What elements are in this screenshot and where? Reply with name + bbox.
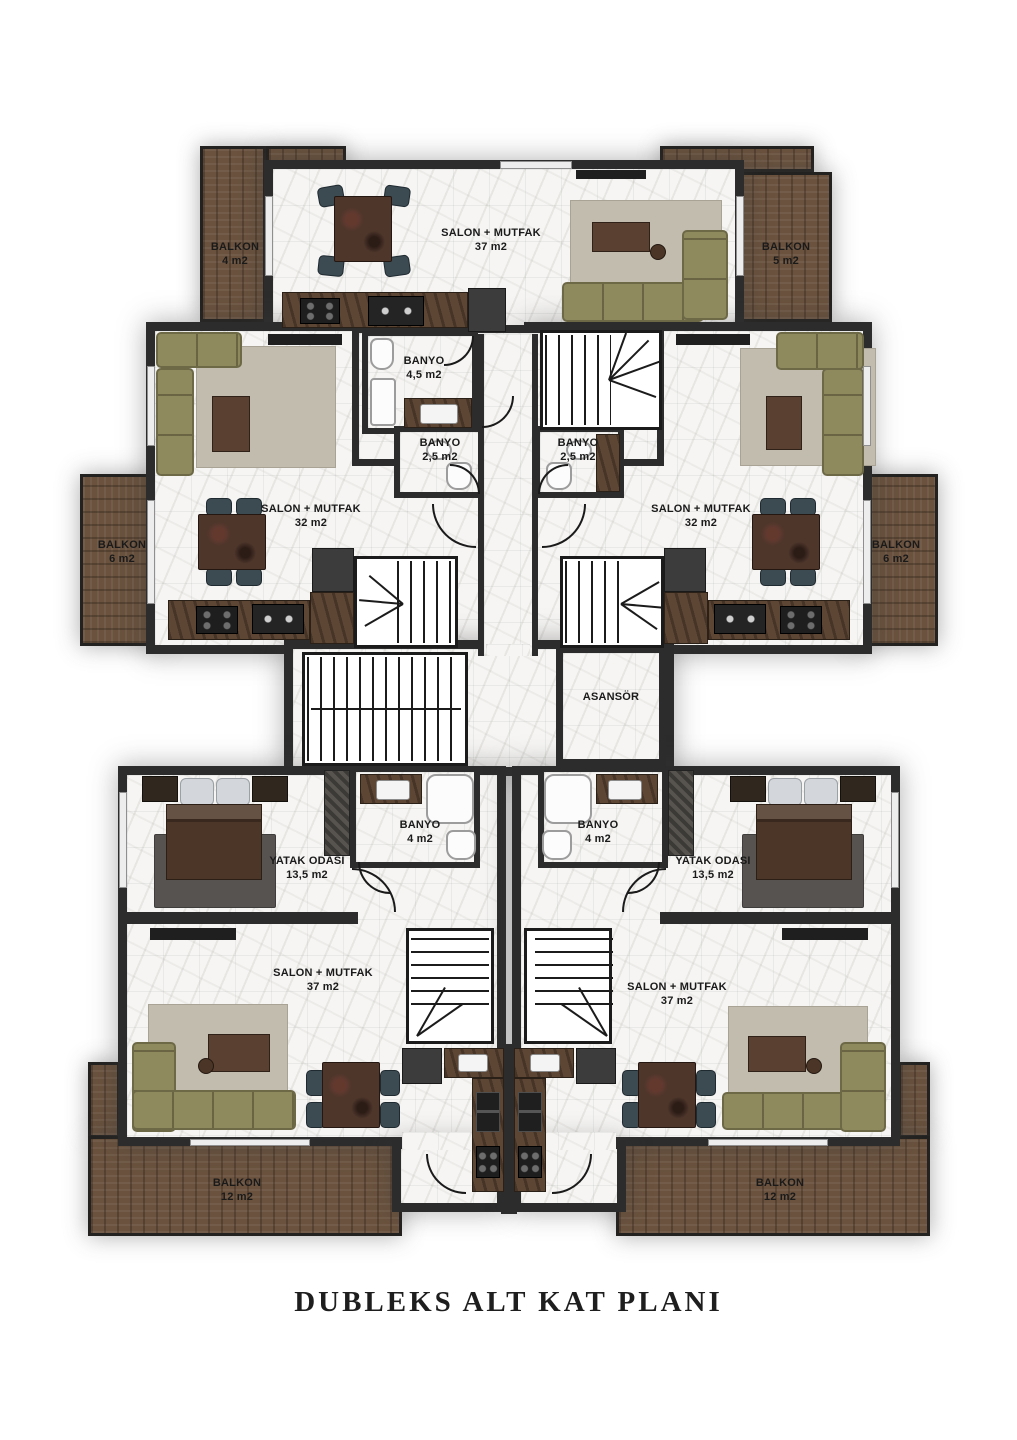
room-name: YATAK ODASI	[675, 854, 750, 868]
room-name: ASANSÖR	[583, 690, 639, 704]
dining-chair	[380, 1070, 400, 1096]
window	[708, 1139, 828, 1146]
room-label-salon-mid-left: SALON + MUTFAK 32 m2	[238, 502, 384, 530]
staircase-top-unit	[540, 330, 662, 430]
room-name: BALKON	[213, 1176, 261, 1190]
window	[736, 196, 744, 276]
room-area: 4 m2	[222, 254, 248, 268]
stair-treads	[545, 335, 611, 425]
staircase-core	[302, 652, 468, 766]
staircase-bottom-left-unit	[406, 928, 494, 1044]
stair-treads	[565, 561, 623, 643]
balcony-top-left-floor	[200, 146, 266, 322]
staircase-bottom-right-unit	[524, 928, 612, 1044]
partition-wall	[118, 912, 358, 924]
cooktop	[476, 1146, 500, 1178]
dining-table	[638, 1062, 696, 1128]
bed-pillow	[180, 778, 214, 806]
plan-title: DUBLEKS ALT KAT PLANI	[0, 1286, 1017, 1319]
coffee-table	[592, 222, 650, 252]
sofa	[156, 332, 242, 368]
room-name: SALON + MUTFAK	[441, 226, 541, 240]
window	[863, 366, 871, 446]
wardrobe	[324, 770, 350, 856]
nightstand	[730, 776, 766, 802]
partition-wall	[660, 912, 900, 924]
room-label-salon-top: SALON + MUTFAK 37 m2	[418, 226, 564, 254]
washbasin	[376, 780, 410, 800]
sofa	[156, 368, 194, 476]
window	[119, 792, 127, 888]
stair-treads	[397, 561, 455, 643]
dining-chair	[790, 568, 816, 586]
sofa	[682, 230, 728, 320]
floor-plan: BALKON 4 m2 SALON + MUTFAK 37 m2 BALKON …	[0, 0, 1017, 1440]
kitchen-sink	[530, 1054, 560, 1072]
wardrobe	[668, 770, 694, 856]
room-name: BALKON	[872, 538, 920, 552]
coffee-table	[212, 396, 250, 452]
room-area: 32 m2	[295, 516, 327, 530]
dining-chair	[206, 568, 232, 586]
room-label-salon-bottom-left: SALON + MUTFAK 37 m2	[250, 966, 396, 994]
window	[500, 161, 572, 169]
room-name: BALKON	[762, 240, 810, 254]
sofa	[840, 1042, 886, 1132]
side-table	[650, 244, 666, 260]
room-area: 4,5 m2	[406, 368, 441, 382]
stair-treads	[411, 933, 489, 1005]
kitchen-counter	[310, 592, 354, 644]
bed-pillow	[804, 778, 838, 806]
dining-chair	[696, 1102, 716, 1128]
washbasin	[420, 404, 458, 424]
room-label-banyo-bottom-left: BANYO 4 m2	[378, 818, 462, 846]
stair-winder-line	[621, 581, 660, 605]
room-label-banyo-bottom-right: BANYO 4 m2	[556, 818, 640, 846]
tv-unit	[268, 334, 342, 345]
window	[190, 1139, 310, 1146]
cooktop	[300, 298, 340, 324]
dishwasher	[576, 1048, 616, 1084]
room-area: 6 m2	[109, 552, 135, 566]
sofa	[822, 368, 864, 476]
stair-winder-line	[416, 1003, 463, 1037]
coffee-table	[766, 396, 802, 450]
kitchen-sink	[458, 1054, 488, 1072]
stair-treads	[535, 933, 613, 1005]
dining-chair	[760, 568, 786, 586]
room-label-yatak-right: YATAK ODASI 13,5 m2	[640, 854, 786, 882]
room-name: BANYO	[400, 818, 441, 832]
sofa	[132, 1090, 296, 1130]
tv-unit	[150, 928, 236, 940]
room-label-balkon-top-right: BALKON 5 m2	[744, 240, 828, 268]
oven	[518, 1092, 542, 1132]
fridge	[312, 548, 354, 592]
side-table	[806, 1058, 822, 1074]
washbasin	[608, 780, 642, 800]
staircase-mid-left-unit	[354, 556, 458, 648]
nightstand	[840, 776, 876, 802]
room-label-salon-mid-right: SALON + MUTFAK 32 m2	[628, 502, 774, 530]
room-name: SALON + MUTFAK	[261, 502, 361, 516]
room-label-banyo-mid-left: BANYO 2,5 m2	[398, 436, 482, 464]
cooktop	[518, 1146, 542, 1178]
room-label-banyo-mid-right: BANYO 2,5 m2	[536, 436, 620, 464]
dining-table	[322, 1062, 380, 1128]
stair-winder-line	[609, 379, 657, 398]
staircase-mid-right-unit	[560, 556, 664, 648]
room-name: YATAK ODASI	[269, 854, 344, 868]
room-name: BALKON	[756, 1176, 804, 1190]
kitchen-sink	[252, 604, 304, 634]
room-area: 4 m2	[407, 832, 433, 846]
dining-chair	[236, 568, 262, 586]
room-area: 13,5 m2	[286, 868, 328, 882]
room-label-balkon-top-left: BALKON 4 m2	[193, 240, 277, 268]
room-area: 4 m2	[585, 832, 611, 846]
room-name: BANYO	[420, 436, 461, 450]
tv-unit	[782, 928, 868, 940]
kitchen-sink	[368, 296, 424, 326]
window	[147, 366, 155, 446]
room-area: 5 m2	[773, 254, 799, 268]
room-area: 32 m2	[685, 516, 717, 530]
nightstand	[252, 776, 288, 802]
room-label-balkon-mid-left: BALKON 6 m2	[80, 538, 164, 566]
shower-tray	[544, 774, 592, 824]
dining-chair	[696, 1070, 716, 1096]
floor-opening	[486, 644, 530, 656]
bed-pillow	[216, 778, 250, 806]
room-area: 2,5 m2	[560, 450, 595, 464]
corridor	[478, 334, 538, 656]
shower-tray	[426, 774, 474, 824]
shower-tray	[370, 378, 396, 426]
sofa	[776, 332, 864, 370]
room-name: SALON + MUTFAK	[273, 966, 373, 980]
nightstand	[142, 776, 178, 802]
stair-winder-line	[561, 1003, 608, 1037]
elevator-room	[556, 646, 666, 766]
room-area: 6 m2	[883, 552, 909, 566]
fridge	[664, 548, 706, 592]
room-label-balkon-mid-right: BALKON 6 m2	[854, 538, 938, 566]
stair-landing-rail	[311, 708, 461, 710]
tv-unit	[576, 170, 646, 179]
balcony-bottom-left-wing	[88, 1062, 120, 1138]
room-label-salon-bottom-right: SALON + MUTFAK 37 m2	[604, 980, 750, 1008]
room-area: 12 m2	[764, 1190, 796, 1204]
cooktop	[780, 606, 822, 634]
room-name: BANYO	[558, 436, 599, 450]
dining-chair	[380, 1102, 400, 1128]
room-area: 37 m2	[307, 980, 339, 994]
coffee-table	[748, 1036, 806, 1072]
bed-pillow	[768, 778, 802, 806]
room-name: BALKON	[98, 538, 146, 552]
room-area: 37 m2	[661, 994, 693, 1008]
fridge	[468, 288, 506, 332]
room-area: 2,5 m2	[422, 450, 457, 464]
oven	[476, 1092, 500, 1132]
cooktop	[196, 606, 238, 634]
tv-unit	[676, 334, 750, 345]
room-name: SALON + MUTFAK	[627, 980, 727, 994]
room-label-balkon-bottom-right: BALKON 12 m2	[738, 1176, 822, 1204]
coffee-table	[208, 1034, 270, 1072]
balcony-bottom-right-wing	[898, 1062, 930, 1138]
room-area: 13,5 m2	[692, 868, 734, 882]
kitchen-counter	[664, 592, 708, 644]
room-area: 12 m2	[221, 1190, 253, 1204]
dishwasher	[402, 1048, 442, 1084]
kitchen-sink	[714, 604, 766, 634]
room-label-banyo-top: BANYO 4,5 m2	[382, 354, 466, 382]
room-name: BANYO	[578, 818, 619, 832]
room-name: SALON + MUTFAK	[651, 502, 751, 516]
window	[891, 792, 899, 888]
room-name: BALKON	[211, 240, 259, 254]
room-label-yatak-left: YATAK ODASI 13,5 m2	[234, 854, 380, 882]
side-table	[198, 1058, 214, 1074]
room-label-asansor: ASANSÖR	[558, 690, 664, 704]
room-area: 37 m2	[475, 240, 507, 254]
room-label-balkon-bottom-left: BALKON 12 m2	[195, 1176, 279, 1204]
dining-table	[334, 196, 392, 262]
room-name: BANYO	[404, 354, 445, 368]
